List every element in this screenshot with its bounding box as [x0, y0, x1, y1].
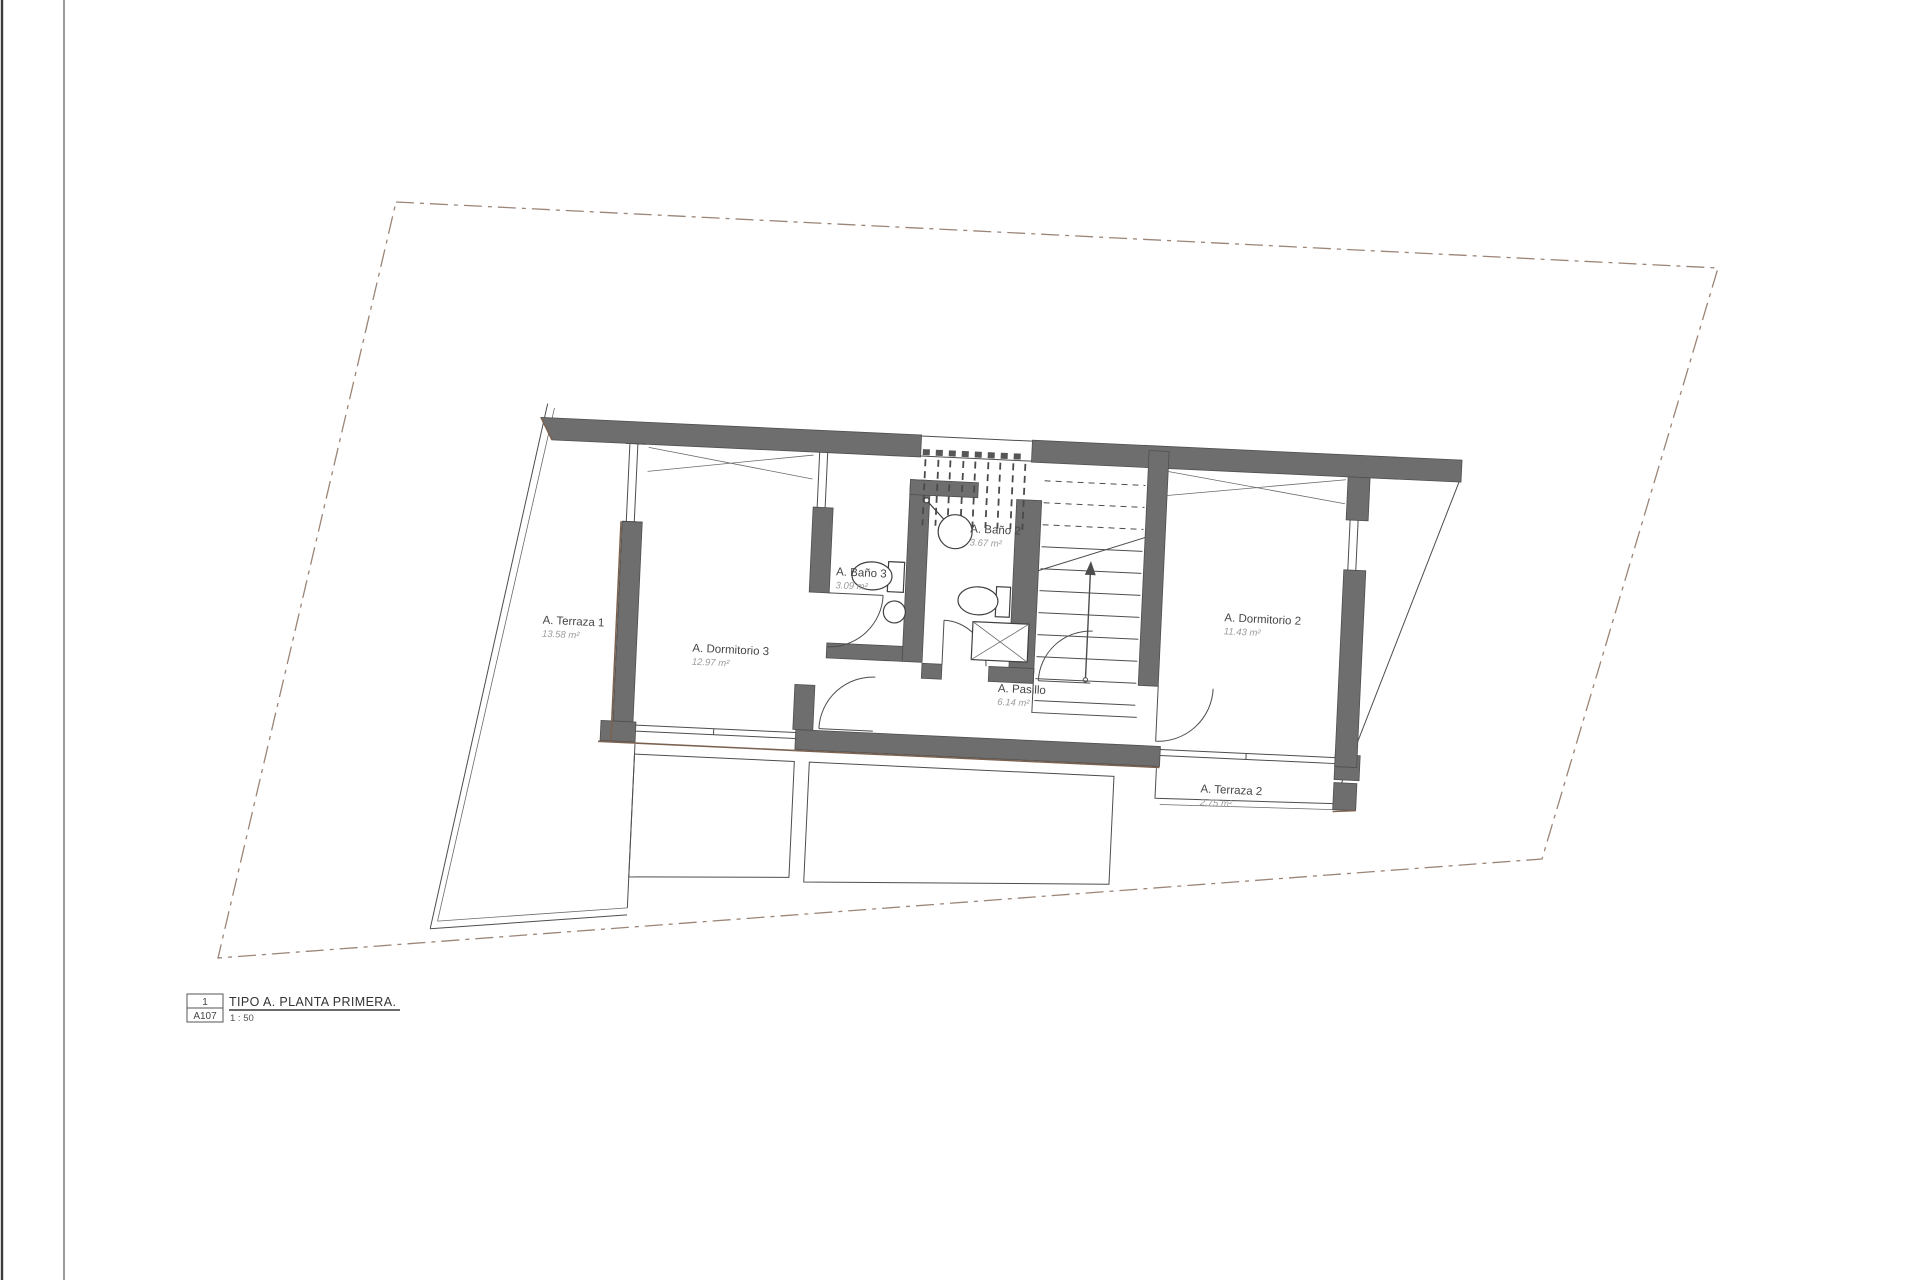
svg-text:A. Dormitorio 2: A. Dormitorio 2 — [1224, 612, 1301, 628]
svg-text:2.75 m²: 2.75 m² — [1199, 797, 1234, 810]
site-boundary-line — [218, 202, 1718, 958]
sink-icon-bano3 — [883, 600, 906, 623]
shower-tray-bano2 — [971, 622, 1029, 663]
floor-plan-drawing: A. Terraza 1 13.58 m² A. Dormitorio 3 12… — [0, 0, 1920, 1280]
svg-text:A. Baño 2: A. Baño 2 — [970, 523, 1021, 537]
room-label-dormitorio3: A. Dormitorio 3 12.97 m² — [692, 643, 770, 672]
building-plan: A. Terraza 1 13.58 m² A. Dormitorio 3 12… — [430, 399, 1463, 975]
room-label-terraza1: A. Terraza 1 13.58 m² — [542, 615, 605, 643]
detail-number: 1 — [202, 997, 208, 1008]
door-bano3 — [827, 593, 883, 649]
room-label-bano2: A. Baño 2 3.67 m² — [969, 523, 1021, 550]
door-dorm3 — [819, 675, 875, 731]
svg-text:3.67 m²: 3.67 m² — [969, 537, 1003, 550]
svg-text:11.43 m²: 11.43 m² — [1224, 626, 1262, 639]
svg-text:13.58 m²: 13.58 m² — [542, 629, 581, 642]
svg-text:A. Dormitorio 3: A. Dormitorio 3 — [692, 643, 769, 659]
svg-text:A. Terraza 2: A. Terraza 2 — [1200, 783, 1262, 798]
room-label-dormitorio2: A. Dormitorio 2 11.43 m² — [1224, 612, 1302, 641]
toilet-icon-bano2 — [957, 585, 1010, 617]
door-dorm2 — [1156, 686, 1213, 743]
window-dorm2-bottom — [1160, 749, 1335, 763]
svg-text:6.14 m²: 6.14 m² — [997, 697, 1031, 710]
svg-text:12.97 m²: 12.97 m² — [692, 657, 731, 670]
window-right-wall — [1348, 520, 1358, 570]
stairs — [1032, 481, 1148, 718]
svg-text:A. Pasillo: A. Pasillo — [998, 683, 1046, 697]
window-left-wall — [622, 443, 646, 522]
drawing-sheet: A. Terraza 1 13.58 m² A. Dormitorio 3 12… — [0, 0, 1920, 1280]
stair-direction-arrow — [1080, 561, 1097, 683]
room-label-pasillo: A. Pasillo 6.14 m² — [997, 683, 1046, 710]
glass-partition-bano3 — [817, 452, 828, 507]
svg-text:A. Terraza 1: A. Terraza 1 — [542, 615, 604, 630]
drawing-scale: 1 : 50 — [230, 1013, 254, 1024]
drawing-title: TIPO A. PLANTA PRIMERA. — [229, 995, 396, 1009]
title-block: 1 A107 TIPO A. PLANTA PRIMERA. 1 : 50 — [187, 994, 400, 1024]
sheet-number: A107 — [193, 1011, 217, 1022]
window-dorm3-bottom — [636, 725, 796, 738]
svg-text:A. Baño 3: A. Baño 3 — [836, 566, 887, 580]
svg-text:3.09 m²: 3.09 m² — [835, 580, 869, 593]
